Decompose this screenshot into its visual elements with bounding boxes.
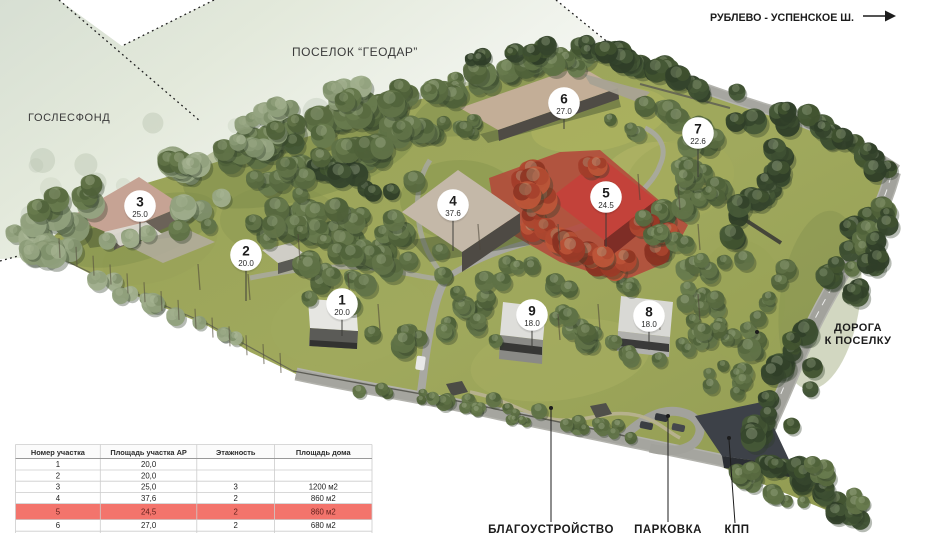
svg-text:3: 3: [56, 483, 60, 492]
svg-text:2: 2: [56, 471, 60, 480]
svg-text:Этажность: Этажность: [216, 448, 256, 457]
svg-text:2: 2: [234, 507, 238, 516]
svg-text:860 м2: 860 м2: [311, 507, 336, 516]
svg-text:8: 8: [645, 305, 653, 320]
svg-text:5: 5: [602, 186, 610, 201]
svg-text:Номер участка: Номер участка: [31, 448, 86, 457]
svg-text:2: 2: [242, 244, 250, 259]
svg-text:Площадь дома: Площадь дома: [296, 448, 352, 457]
svg-text:РУБЛЕВО - УСПЕНСКОЕ Ш.: РУБЛЕВО - УСПЕНСКОЕ Ш.: [710, 12, 854, 24]
svg-text:2: 2: [234, 494, 238, 503]
svg-text:9: 9: [528, 304, 536, 319]
svg-text:20.0: 20.0: [238, 259, 254, 268]
svg-text:Площадь участка АР: Площадь участка АР: [110, 448, 187, 457]
svg-text:20,0: 20,0: [141, 471, 157, 480]
svg-text:860 м2: 860 м2: [311, 494, 336, 503]
svg-text:КПП: КПП: [724, 524, 749, 533]
svg-text:ПАРКОВКА: ПАРКОВКА: [634, 524, 702, 533]
svg-text:18.0: 18.0: [524, 319, 540, 328]
svg-text:3: 3: [234, 483, 238, 492]
svg-text:6: 6: [56, 521, 60, 530]
svg-text:ПОСЕЛОК “ГЕОДАР”: ПОСЕЛОК “ГЕОДАР”: [292, 45, 418, 59]
svg-text:27,0: 27,0: [141, 521, 157, 530]
svg-text:24.5: 24.5: [598, 201, 614, 210]
svg-text:27.0: 27.0: [556, 107, 572, 116]
svg-text:7: 7: [694, 122, 702, 137]
svg-text:БЛАГОУСТРОЙСТВО: БЛАГОУСТРОЙСТВО: [488, 523, 614, 533]
svg-text:37.6: 37.6: [445, 209, 461, 218]
svg-text:20.0: 20.0: [334, 308, 350, 317]
svg-text:25.0: 25.0: [132, 210, 148, 219]
svg-text:4: 4: [449, 194, 457, 209]
svg-text:5: 5: [56, 507, 61, 516]
svg-text:37,6: 37,6: [141, 494, 156, 503]
svg-text:6: 6: [560, 92, 568, 107]
svg-text:1: 1: [56, 460, 60, 469]
svg-text:3: 3: [136, 195, 144, 210]
svg-text:18.0: 18.0: [641, 320, 657, 329]
svg-text:20,0: 20,0: [141, 460, 157, 469]
svg-text:25,0: 25,0: [141, 483, 157, 492]
svg-text:4: 4: [56, 494, 61, 503]
svg-text:680 м2: 680 м2: [311, 521, 336, 530]
svg-text:24,5: 24,5: [141, 507, 157, 516]
svg-text:2: 2: [234, 521, 238, 530]
svg-text:22.6: 22.6: [690, 137, 706, 146]
svg-text:1200 м2: 1200 м2: [309, 483, 338, 492]
svg-text:ДОРОГА: ДОРОГА: [834, 322, 882, 334]
svg-text:1: 1: [338, 293, 346, 308]
svg-text:ГОСЛЕСФОНД: ГОСЛЕСФОНД: [28, 112, 110, 124]
svg-text:К ПОСЕЛКУ: К ПОСЕЛКУ: [825, 335, 892, 347]
